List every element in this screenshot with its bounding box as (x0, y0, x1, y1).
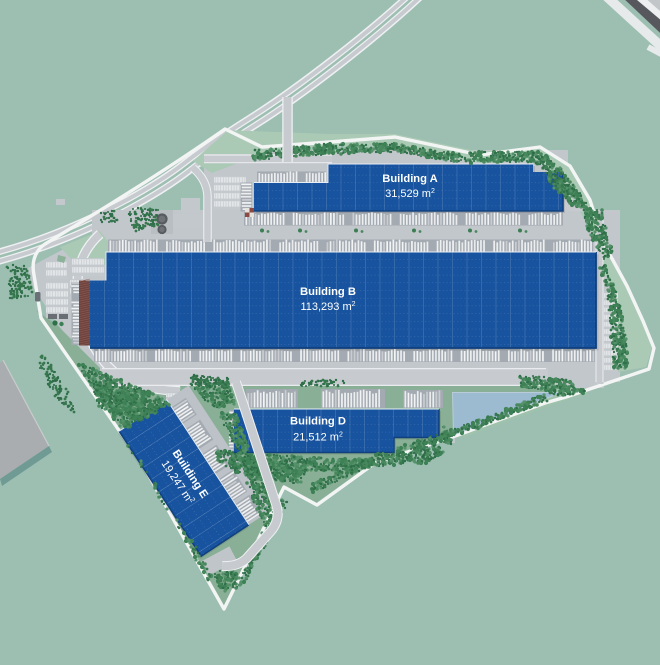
svg-text:Building D: Building D (290, 416, 346, 428)
svg-text:31,529 m2: 31,529 m2 (385, 188, 435, 200)
svg-text:113,293 m2: 113,293 m2 (300, 301, 355, 313)
svg-text:Building B: Building B (300, 286, 356, 298)
svg-text:21,512 m2: 21,512 m2 (293, 432, 343, 444)
svg-text:Building A: Building A (382, 173, 438, 185)
